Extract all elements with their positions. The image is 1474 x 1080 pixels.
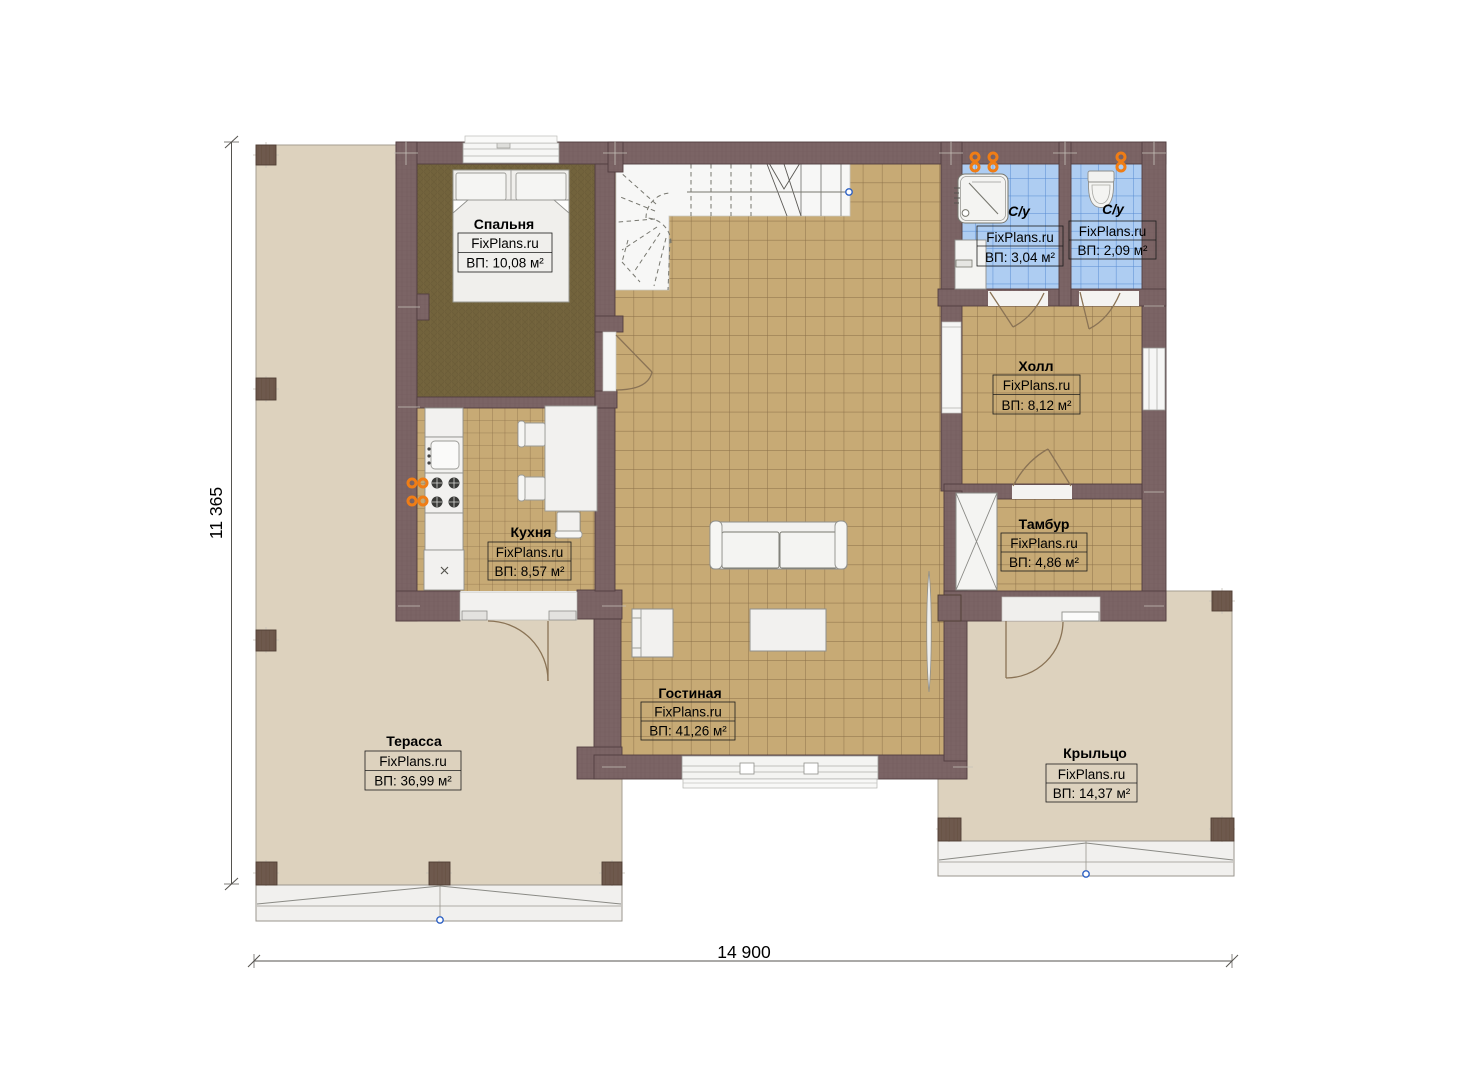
svg-text:11 365: 11 365: [206, 487, 226, 539]
svg-text:FixPlans.ru: FixPlans.ru: [1058, 767, 1126, 782]
svg-text:С/у: С/у: [1102, 201, 1125, 217]
svg-text:ВП: 4,86 м²: ВП: 4,86 м²: [1009, 555, 1080, 570]
svg-text:FixPlans.ru: FixPlans.ru: [471, 236, 539, 251]
svg-text:ВП: 3,04 м²: ВП: 3,04 м²: [985, 250, 1056, 265]
svg-text:FixPlans.ru: FixPlans.ru: [1010, 536, 1078, 551]
svg-text:ВП: 36,99 м²: ВП: 36,99 м²: [374, 774, 452, 789]
svg-text:FixPlans.ru: FixPlans.ru: [1003, 378, 1071, 393]
svg-text:Кухня: Кухня: [511, 524, 552, 540]
svg-text:FixPlans.ru: FixPlans.ru: [986, 230, 1054, 245]
svg-text:Холл: Холл: [1018, 358, 1053, 374]
svg-text:Терасса: Терасса: [386, 733, 442, 749]
svg-text:ВП: 10,08 м²: ВП: 10,08 м²: [466, 256, 544, 271]
svg-text:ВП: 14,37 м²: ВП: 14,37 м²: [1053, 786, 1131, 801]
svg-text:Спальня: Спальня: [474, 216, 534, 232]
svg-text:ВП: 8,57 м²: ВП: 8,57 м²: [494, 564, 565, 579]
svg-text:Крыльцо: Крыльцо: [1063, 745, 1127, 761]
svg-text:ВП: 8,12 м²: ВП: 8,12 м²: [1001, 398, 1072, 413]
svg-text:FixPlans.ru: FixPlans.ru: [496, 545, 564, 560]
svg-text:ВП: 41,26 м²: ВП: 41,26 м²: [649, 724, 727, 739]
svg-text:С/у: С/у: [1008, 203, 1031, 219]
svg-text:FixPlans.ru: FixPlans.ru: [654, 705, 722, 720]
svg-text:14 900: 14 900: [717, 942, 771, 962]
svg-text:FixPlans.ru: FixPlans.ru: [379, 754, 447, 769]
svg-text:Тамбур: Тамбур: [1019, 516, 1070, 532]
svg-text:FixPlans.ru: FixPlans.ru: [1079, 224, 1147, 239]
svg-text:ВП: 2,09 м²: ВП: 2,09 м²: [1077, 243, 1148, 258]
svg-text:Гостиная: Гостиная: [658, 685, 721, 701]
